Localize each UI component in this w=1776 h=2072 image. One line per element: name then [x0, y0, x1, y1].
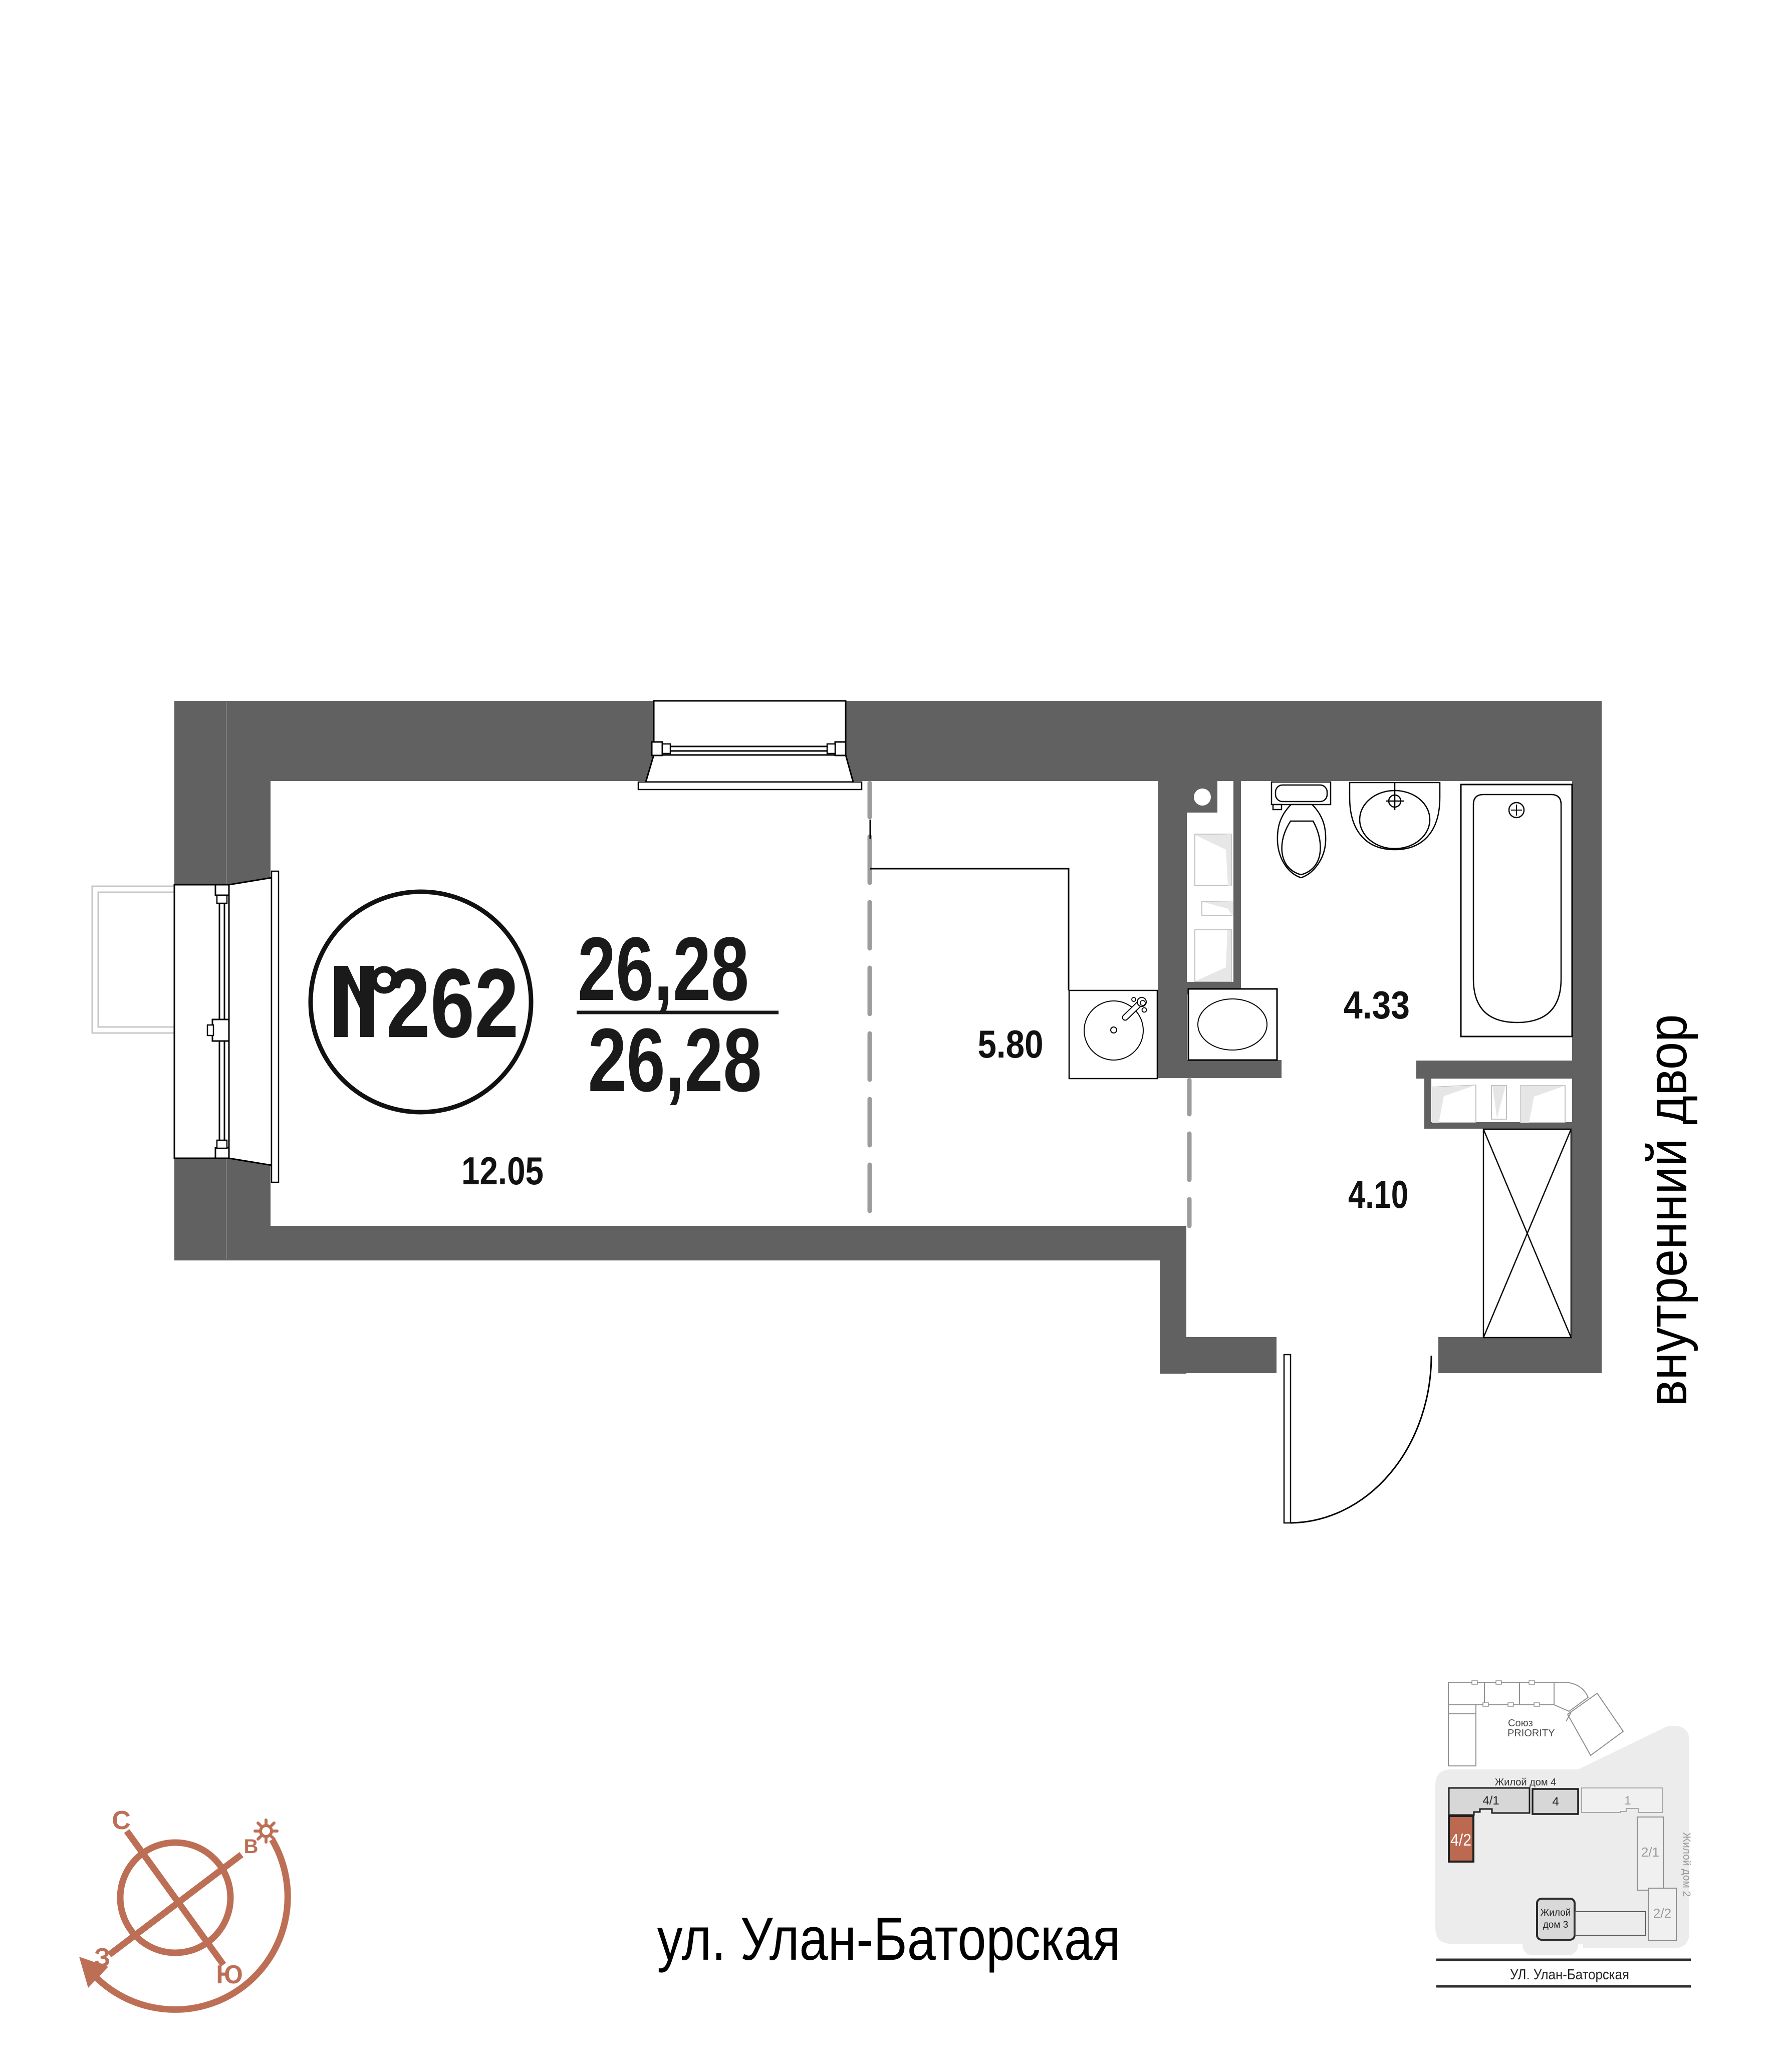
svg-text:З: З: [94, 1943, 111, 1972]
svg-text:4.10: 4.10: [1348, 1172, 1408, 1216]
svg-text:26,28: 26,28: [588, 1010, 762, 1111]
svg-text:Жилой дом 2: Жилой дом 2: [1681, 1833, 1692, 1897]
svg-text:1: 1: [1624, 1794, 1631, 1807]
svg-text:Жилой: Жилой: [1541, 1908, 1571, 1918]
svg-text:4/1: 4/1: [1482, 1794, 1499, 1807]
svg-text:2/2: 2/2: [1653, 1906, 1671, 1921]
svg-text:PRIORITY: PRIORITY: [1507, 1728, 1555, 1739]
svg-text:ул. Улан-Баторская: ул. Улан-Баторская: [657, 1905, 1121, 1973]
svg-text:4: 4: [1552, 1795, 1559, 1808]
svg-text:2/1: 2/1: [1641, 1845, 1659, 1860]
svg-text:внутренний двор: внутренний двор: [1637, 1014, 1698, 1407]
svg-text:дом 3: дом 3: [1543, 1920, 1569, 1930]
svg-text:5.80: 5.80: [978, 1022, 1044, 1066]
svg-text:В: В: [244, 1836, 259, 1858]
svg-text:4.33: 4.33: [1344, 983, 1410, 1027]
svg-text:С: С: [112, 1806, 131, 1835]
svg-text:262: 262: [386, 948, 519, 1058]
svg-text:УЛ. Улан-Баторская: УЛ. Улан-Баторская: [1510, 1967, 1629, 1983]
svg-text:Ю: Ю: [216, 1960, 243, 1989]
svg-text:4/2: 4/2: [1450, 1831, 1471, 1849]
svg-text:Союз: Союз: [1508, 1718, 1533, 1729]
svg-text:12.05: 12.05: [461, 1149, 544, 1193]
svg-text:Жилой дом 4: Жилой дом 4: [1495, 1777, 1557, 1788]
svg-text:26,28: 26,28: [578, 919, 749, 1019]
